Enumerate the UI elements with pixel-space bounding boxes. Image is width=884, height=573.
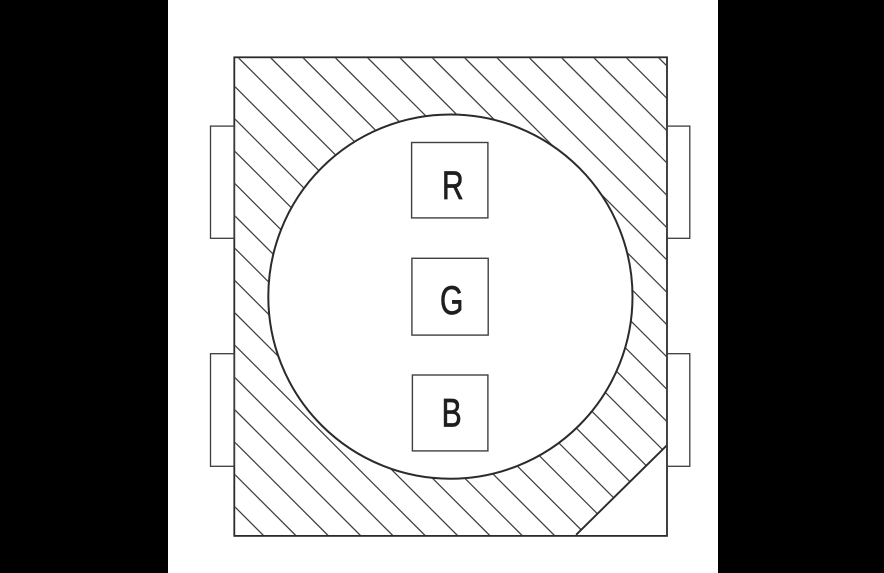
svg-text:G: G <box>440 279 463 323</box>
svg-text:R: R <box>442 164 464 208</box>
svg-text:B: B <box>442 392 462 436</box>
